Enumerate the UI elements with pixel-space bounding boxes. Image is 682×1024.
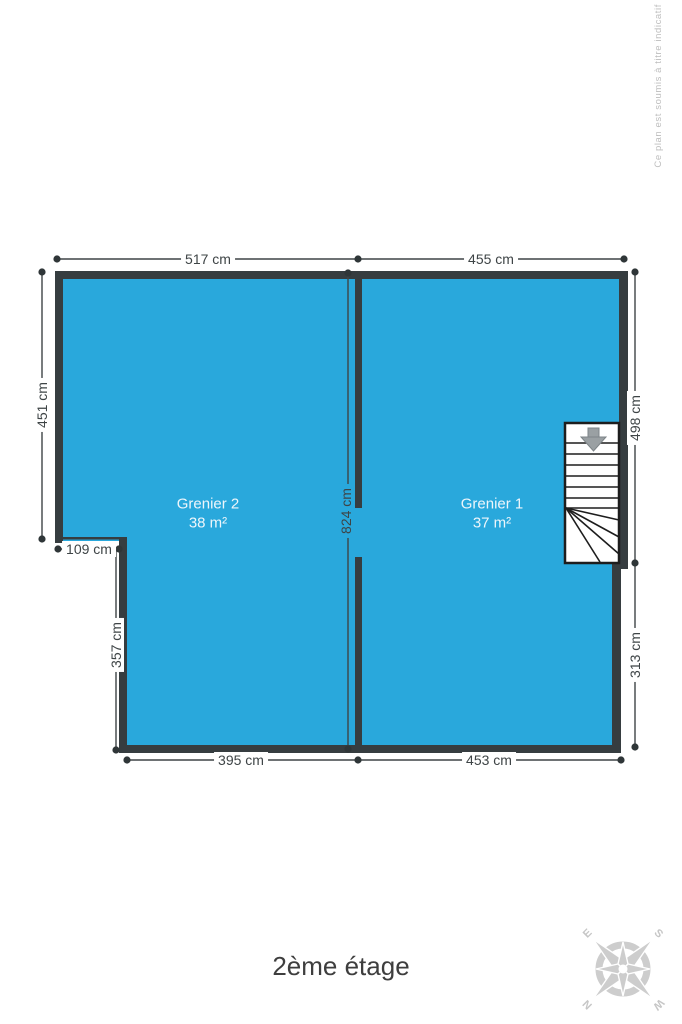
room-name: Grenier 1: [461, 495, 524, 514]
dimension-label-left: 451 cm: [34, 378, 50, 432]
dimension-label-bottom-right: 453 cm: [462, 752, 516, 768]
room-area: 37 m²: [461, 514, 524, 533]
room-label-grenier-1: Grenier 1 37 m²: [461, 495, 524, 533]
compass-rose-icon: E S W N: [575, 920, 671, 1016]
dimension-label-bottom-left: 395 cm: [214, 752, 268, 768]
dimension-label-right-upper: 498 cm: [627, 391, 643, 445]
compass-north-label: N: [581, 997, 595, 1011]
floor-plan-page: 517 cm 455 cm 451 cm 498 cm 313 cm 824 c…: [0, 0, 682, 1024]
stairs: [565, 423, 619, 563]
dimension-label-notch: 109 cm: [62, 541, 116, 557]
notch-edge-line: [63, 537, 119, 540]
disclaimer-watermark: Ce plan est soumis à titre indicatif: [653, 4, 664, 168]
wall-center-lower: [355, 557, 362, 745]
compass-south-label: S: [651, 927, 665, 941]
dimension-label-left-lower: 357 cm: [108, 618, 124, 672]
wall-right-lower: [612, 563, 621, 753]
wall-left-upper: [55, 271, 63, 543]
compass-east-label: E: [581, 927, 595, 941]
room-area: 38 m²: [177, 514, 240, 533]
dimension-label-right-lower: 313 cm: [627, 628, 643, 682]
dimension-label-top-left: 517 cm: [181, 251, 235, 267]
dimension-label-top-right: 455 cm: [464, 251, 518, 267]
room-name: Grenier 2: [177, 495, 240, 514]
dimension-label-center: 824 cm: [338, 484, 354, 538]
wall-center-upper: [355, 279, 362, 508]
room-label-grenier-2: Grenier 2 38 m²: [177, 495, 240, 533]
wall-top: [55, 271, 627, 279]
wall-bottom: [119, 745, 621, 753]
